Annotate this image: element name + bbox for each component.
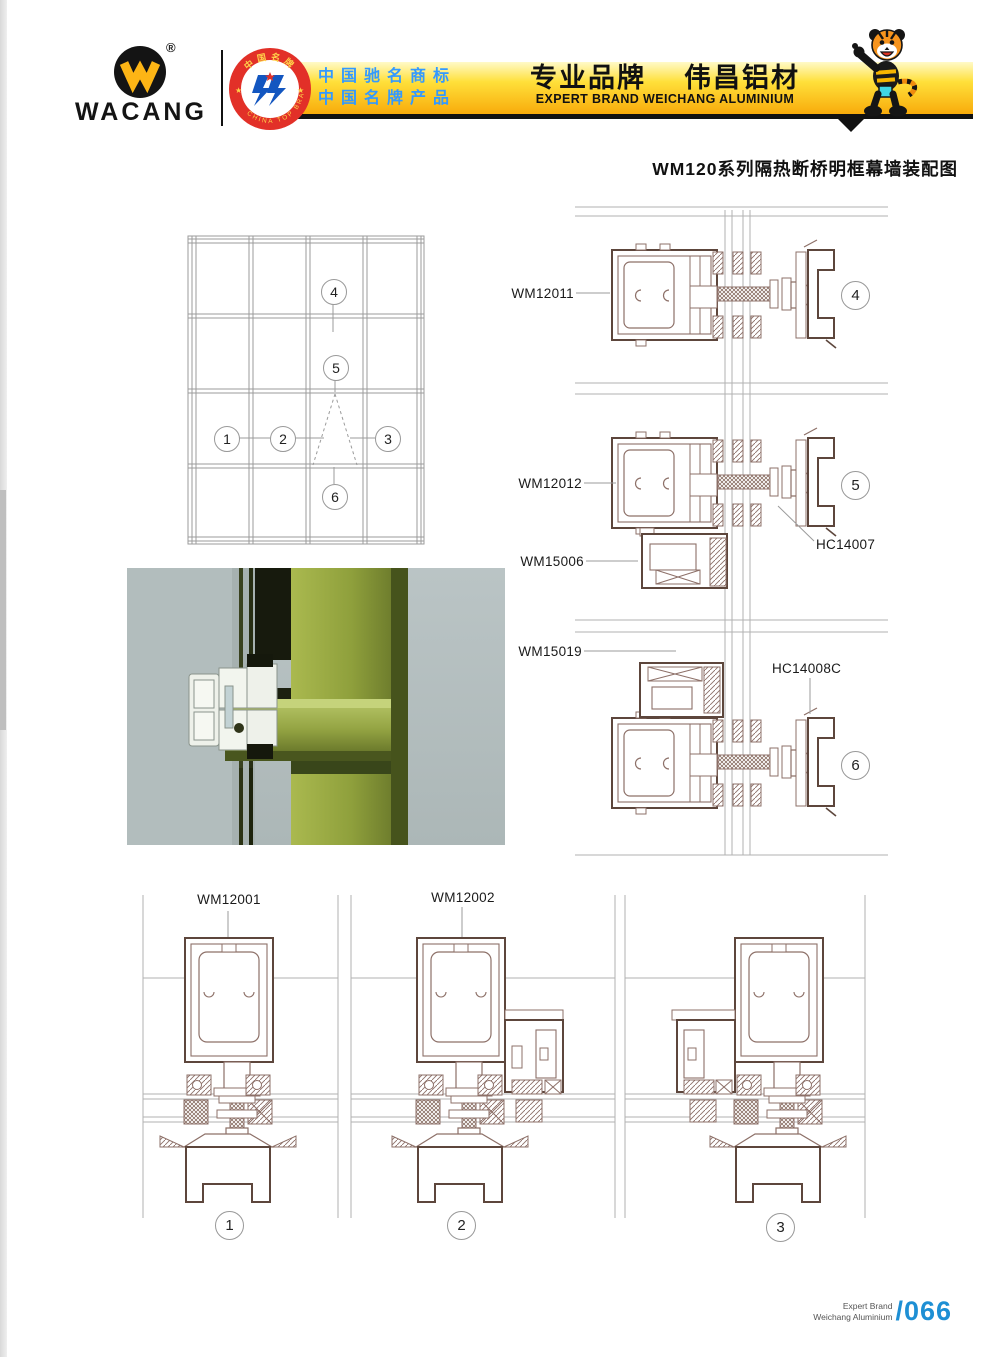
footer-line2: Weichang Aluminium	[813, 1312, 892, 1323]
elevation-callout-6: 6	[322, 484, 348, 510]
banner-title-right: 伟昌铝材	[684, 63, 800, 93]
wacang-logo-icon	[112, 44, 168, 100]
profile-photo-image	[127, 568, 505, 845]
banner-title: 专业品牌伟昌铝材	[500, 63, 830, 93]
badge-star-left: ★	[235, 86, 242, 95]
banner-subtitle: EXPERT BRAND WEICHANG ALUMINIUM	[500, 92, 830, 106]
elevation-callout-4: 4	[321, 279, 347, 305]
scan-artifact	[0, 490, 6, 730]
section-callout-4: 4	[841, 281, 870, 310]
banner-claim-1: 中国驰名商标	[318, 66, 456, 88]
banner-claims: 中国驰名商标 中国名牌产品	[318, 66, 456, 110]
footer-brand-text: Expert Brand Weichang Aluminium	[813, 1301, 892, 1322]
label-wm12012: WM12012	[498, 476, 582, 491]
section-callout-5: 5	[841, 471, 870, 500]
footer-line1: Expert Brand	[813, 1301, 892, 1312]
page-number: /066	[895, 1296, 952, 1327]
label-wm12002: WM12002	[420, 890, 506, 905]
china-top-brand-badge: 中国名牌 CHINA TOP BRAND ★ ★	[227, 46, 313, 132]
section-callout-2: 2	[447, 1211, 476, 1240]
profile-photo	[127, 568, 505, 845]
page-title: WM120系列隔热断桥明框幕墙装配图	[652, 156, 958, 181]
banner-title-left: 专业品牌	[530, 63, 646, 93]
label-wm12011: WM12011	[490, 286, 574, 301]
elevation-callout-3: 3	[375, 426, 401, 452]
label-wm15006: WM15006	[500, 554, 584, 569]
wacang-logo: ® WACANG	[66, 40, 216, 132]
banner-notch	[838, 119, 864, 132]
label-wm12001: WM12001	[186, 892, 272, 907]
label-hc14007: HC14007	[816, 537, 906, 552]
label-wm15019: WM15019	[498, 644, 582, 659]
logo-wordmark: WACANG	[66, 98, 216, 127]
label-hc14008c: HC14008C	[772, 661, 872, 676]
section-callout-6: 6	[841, 751, 870, 780]
header-divider	[221, 50, 223, 126]
section-callout-3: 3	[766, 1213, 795, 1242]
registered-mark: ®	[166, 40, 176, 55]
banner-claim-2: 中国名牌产品	[318, 88, 456, 110]
section-callout-1: 1	[215, 1211, 244, 1240]
footer: Expert Brand Weichang Aluminium /066	[813, 1296, 952, 1327]
badge-star-right: ★	[297, 86, 304, 95]
elevation-callout-5: 5	[323, 355, 349, 381]
banner-main: 专业品牌伟昌铝材 EXPERT BRAND WEICHANG ALUMINIUM	[500, 63, 830, 106]
catalog-page: ® WACANG 中国驰名商标 中国名牌产品 专业品牌伟昌铝材 EXPERT B…	[0, 0, 1000, 1357]
elevation-callout-1: 1	[214, 426, 240, 452]
elevation-callout-2: 2	[270, 426, 296, 452]
tiger-mascot-icon	[846, 24, 926, 120]
